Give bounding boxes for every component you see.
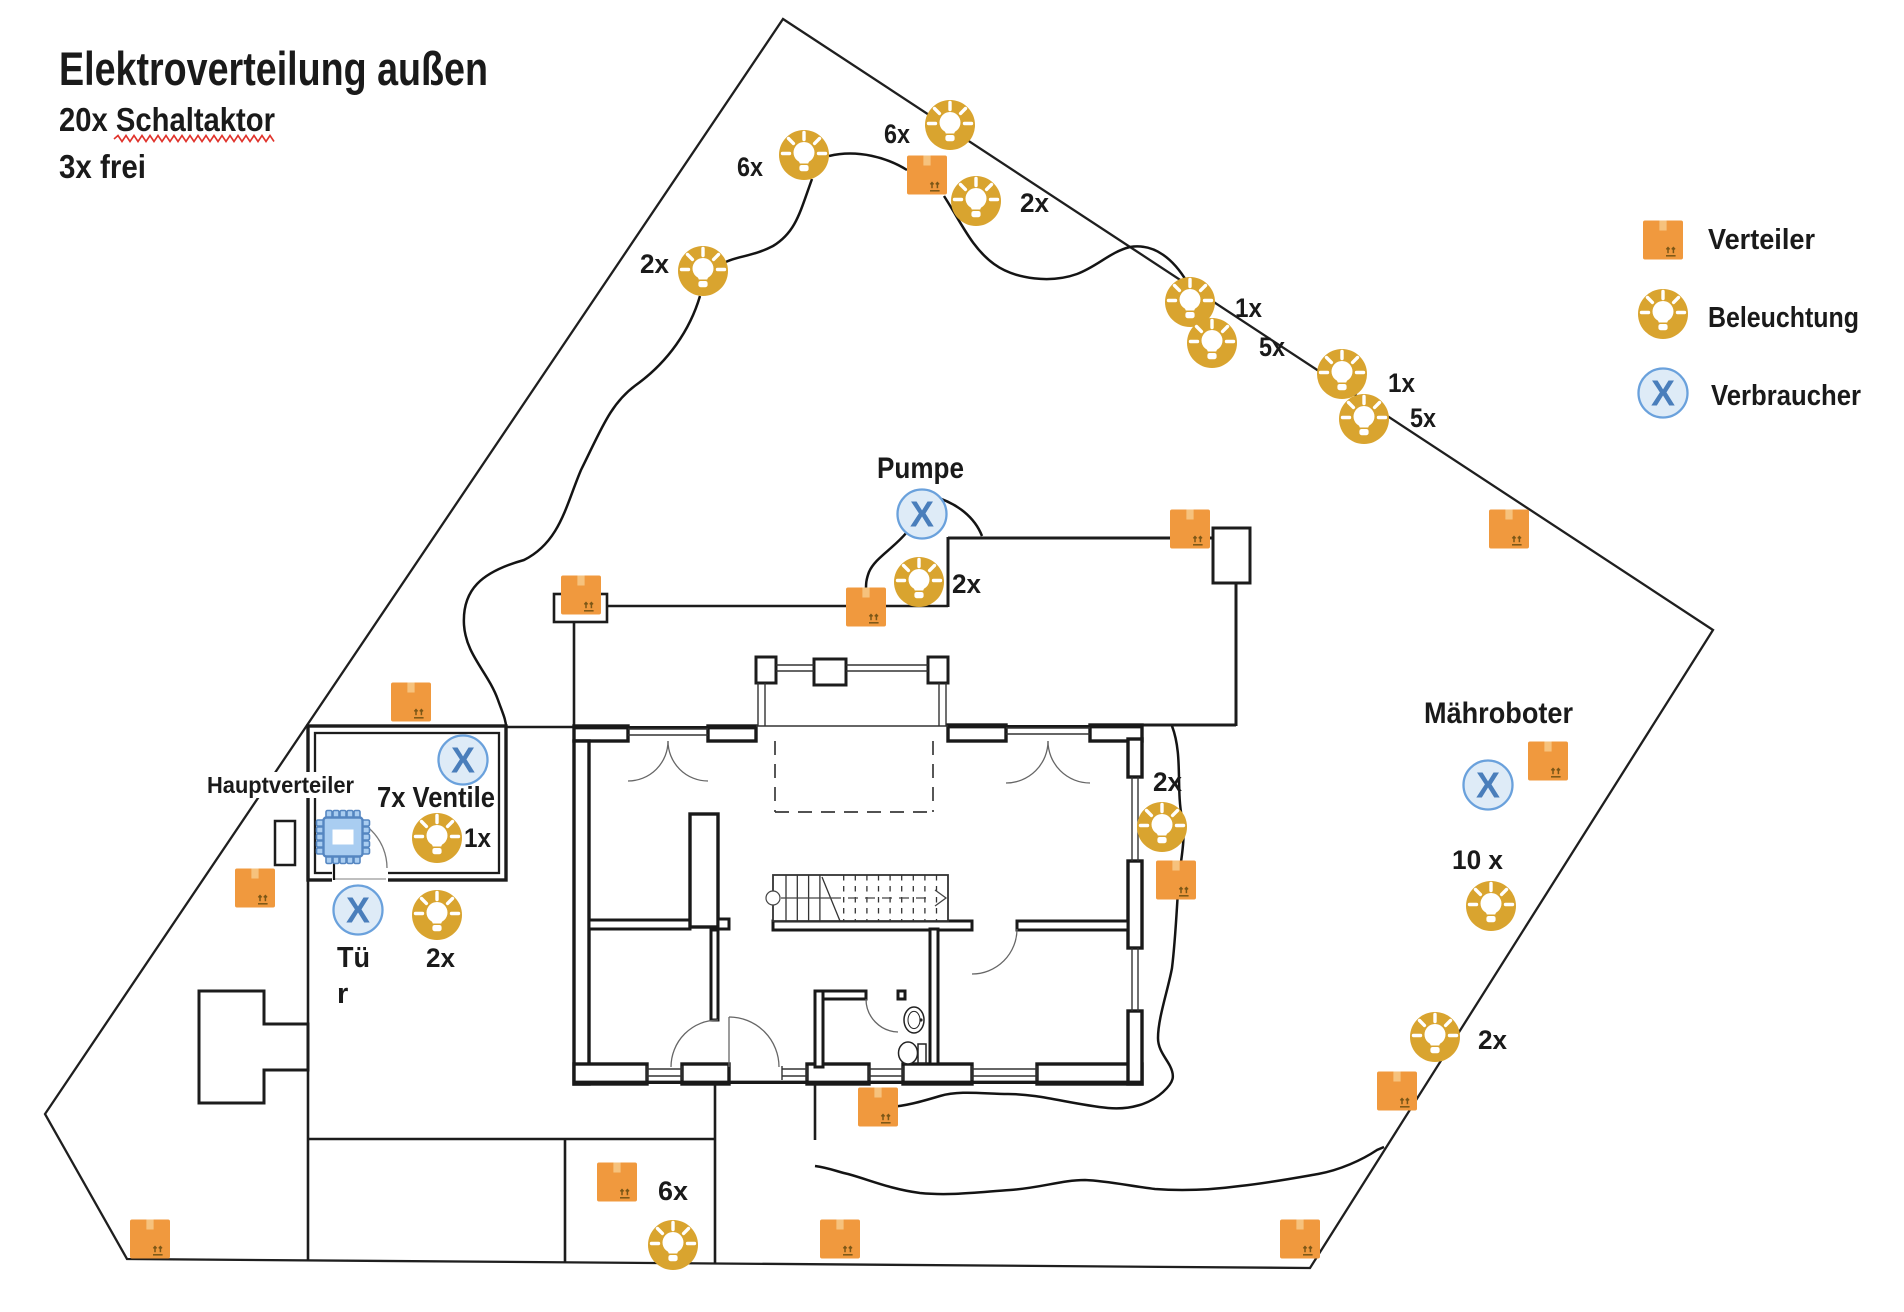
svg-text:Verbraucher: Verbraucher <box>1711 380 1861 412</box>
svg-text:6x: 6x <box>737 152 763 182</box>
svg-text:10 x: 10 x <box>1452 845 1503 875</box>
svg-text:1x: 1x <box>1388 368 1415 398</box>
svg-text:Verteiler: Verteiler <box>1708 224 1815 256</box>
svg-text:Beleuchtung: Beleuchtung <box>1708 302 1859 334</box>
svg-text:5x: 5x <box>1259 332 1285 362</box>
svg-text:6x: 6x <box>658 1176 688 1206</box>
svg-text:7x Ventile: 7x Ventile <box>377 782 495 814</box>
svg-text:3x frei: 3x frei <box>59 148 146 185</box>
svg-text:Tü: Tü <box>337 942 370 974</box>
svg-text:r: r <box>337 978 348 1010</box>
svg-text:2x: 2x <box>426 943 455 973</box>
svg-text:2x: 2x <box>1478 1025 1507 1055</box>
svg-text:1x: 1x <box>1235 293 1262 323</box>
svg-text:1x: 1x <box>464 823 491 853</box>
svg-text:6x: 6x <box>884 119 910 149</box>
svg-text:Elektroverteilung außen: Elektroverteilung außen <box>59 42 488 95</box>
svg-text:2x: 2x <box>952 569 981 599</box>
svg-text:2x: 2x <box>1020 188 1049 218</box>
svg-text:Mähroboter: Mähroboter <box>1424 697 1573 730</box>
svg-text:20x Schaltaktor: 20x Schaltaktor <box>59 101 275 138</box>
svg-text:Hauptverteiler: Hauptverteiler <box>207 772 354 798</box>
svg-text:2x: 2x <box>1153 767 1182 797</box>
svg-text:Pumpe: Pumpe <box>877 452 964 485</box>
svg-text:5x: 5x <box>1410 403 1436 433</box>
svg-text:2x: 2x <box>640 249 669 279</box>
